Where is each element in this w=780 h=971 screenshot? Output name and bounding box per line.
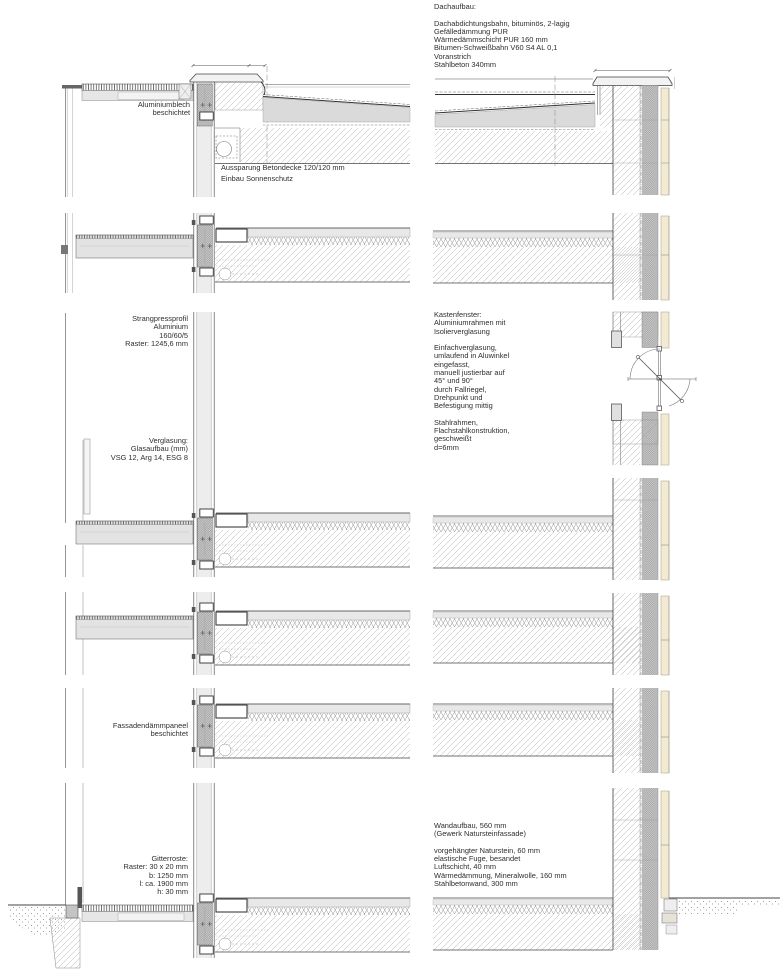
exterior-ground-left (8, 887, 82, 968)
naturstein-layer (661, 596, 669, 675)
spandrel-panel-floor-left (192, 696, 410, 758)
roller-blind (217, 142, 232, 157)
naturstein-layer (661, 791, 669, 898)
intermediate-floor-right-1 (433, 213, 669, 300)
parapet-coping (593, 77, 672, 86)
architectural-detail-drawing: Dachaufbau: Dachabdichtungsbahn, bitumin… (0, 0, 780, 971)
intermediate-floor-left-1 (76, 216, 410, 282)
intermediate-floor-left-3 (76, 603, 410, 665)
window-head (612, 312, 670, 348)
label-aluminiumblech: Aluminiumblech beschichtet (60, 101, 190, 118)
aluminium-coping (190, 74, 263, 82)
right-section-strip (433, 69, 780, 950)
coping-bar (62, 85, 82, 89)
label-strangpressprofil: Strangpressprofil Aluminium 160/60/5 Ras… (58, 315, 188, 348)
intermediate-floor-right-3 (433, 593, 669, 675)
concrete-roof-slab (435, 131, 640, 164)
exterior-ground-right (662, 898, 780, 934)
label-kastenfenster: Kastenfenster: Aluminiumrahmen mit Isoli… (434, 311, 510, 452)
window-flap-detail (628, 347, 696, 411)
concrete-slab (240, 128, 410, 163)
swing-arc (669, 379, 690, 406)
frame-profile (612, 404, 622, 421)
sunshade-recess (215, 128, 240, 162)
naturstein-layer (661, 88, 669, 195)
left-section-strip (8, 64, 410, 968)
fixing-bracket (61, 245, 68, 254)
kastenfenster-detail (612, 312, 697, 465)
frame-profile (612, 331, 622, 348)
naturstein-layer (661, 691, 669, 773)
naturstein-layer (661, 216, 669, 300)
label-dachaufbau: Dachaufbau: Dachabdichtungsbahn, bitumin… (434, 3, 570, 69)
naturstein-layer (661, 312, 669, 348)
label-aussparung: Aussparung Betondecke 120/120 mm Einbau … (221, 162, 345, 185)
dimension-line (192, 64, 267, 67)
parapet-roof-detail (435, 69, 675, 195)
intermediate-floor-right-2 (433, 478, 669, 580)
label-verglasung: Verglasung: Glasaufbau (mm) VSG 12, Arg … (58, 437, 188, 462)
label-gitterroste: Gitterroste: Raster: 30 x 20 mm b: 1250 … (58, 855, 188, 896)
pivot-point (659, 378, 661, 380)
outer-facade-profile (61, 85, 90, 905)
intermediate-floor-left-2 (76, 509, 410, 569)
section-drawing-canvas (0, 0, 780, 971)
label-fassadenpaneel: Fassadendämmpaneel beschichtet (58, 722, 188, 739)
naturstein-layer (661, 481, 669, 580)
label-wandaufbau: Wandaufbau, 560 mm (Gewerk Natursteinfas… (434, 822, 567, 888)
naturstein-layer (661, 414, 669, 465)
dimension-line (594, 69, 672, 72)
window-sill (612, 404, 670, 465)
intermediate-floor-right-4 (433, 688, 669, 773)
foundation (50, 918, 80, 968)
